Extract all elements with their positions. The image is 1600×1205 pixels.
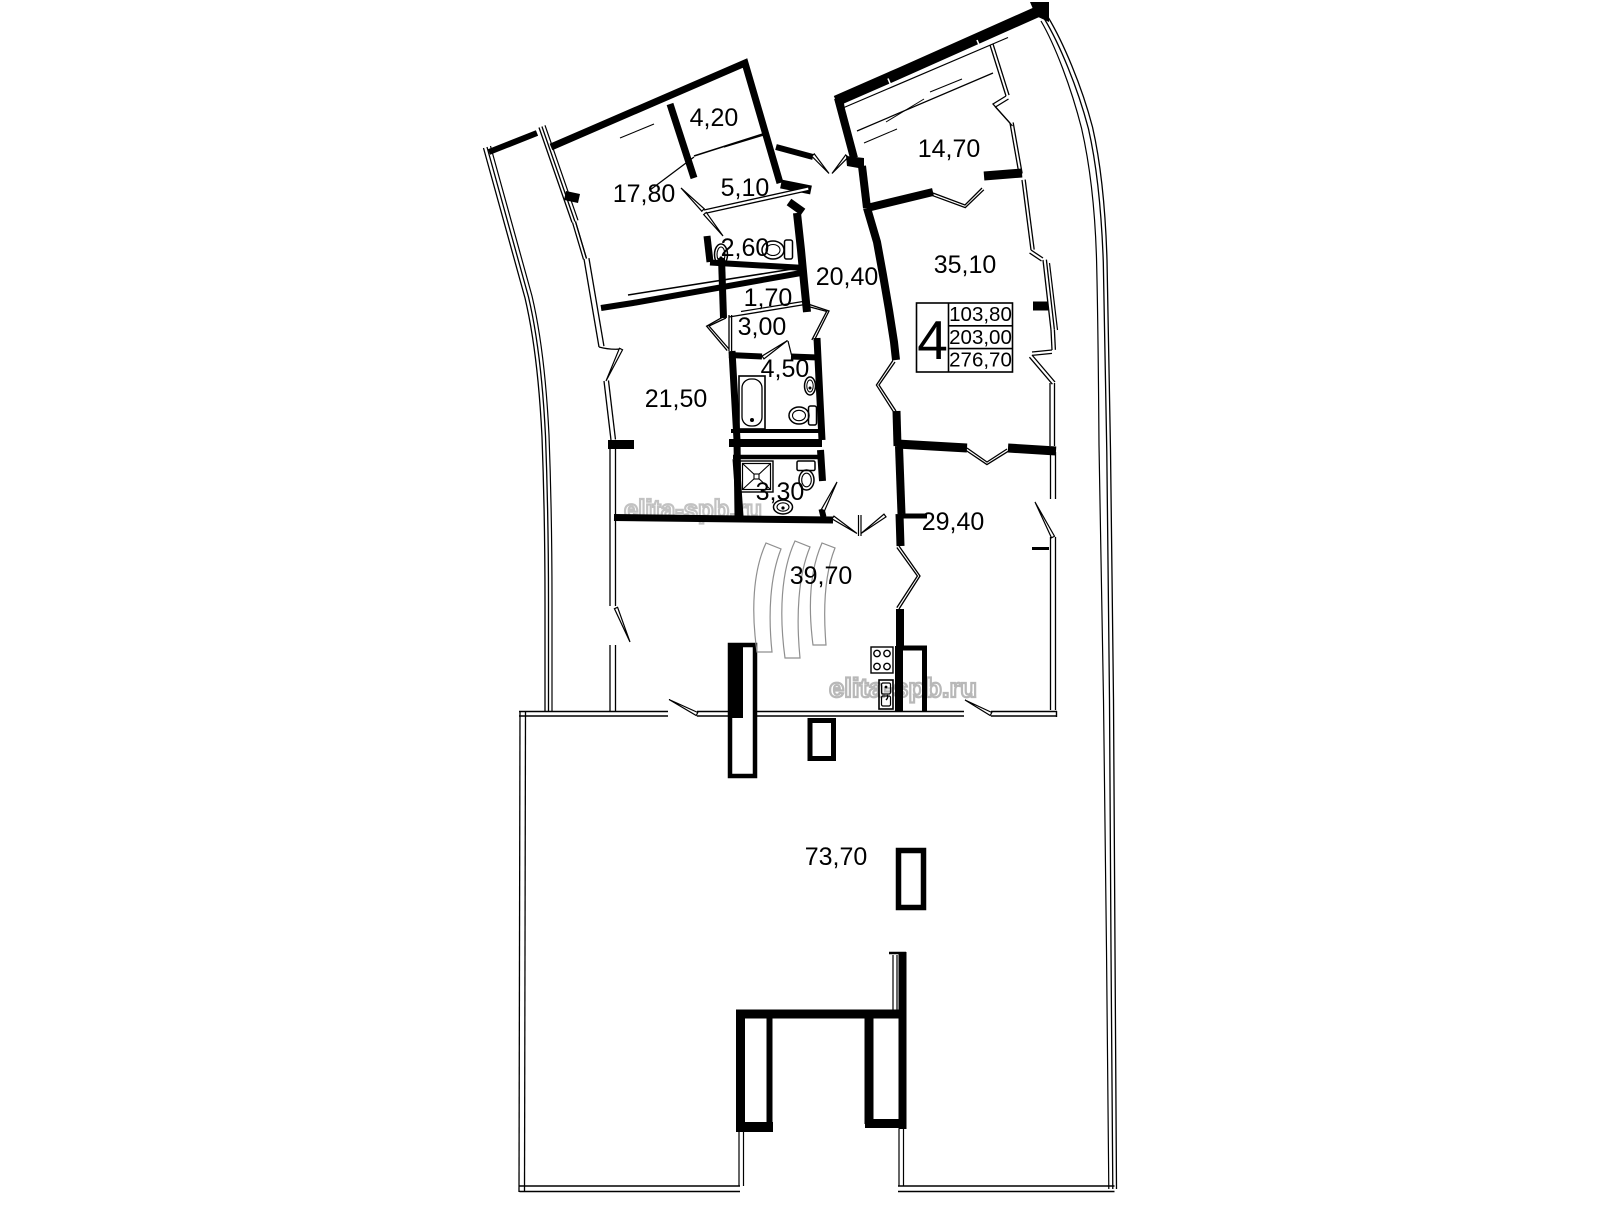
svg-text:4,20: 4,20 [690,104,739,132]
svg-text:21,50: 21,50 [645,385,708,413]
svg-text:276,70: 276,70 [949,349,1012,372]
svg-text:3,30: 3,30 [756,478,805,506]
svg-text:4,50: 4,50 [761,355,810,383]
svg-text:17,80: 17,80 [613,180,676,208]
svg-text:3,00: 3,00 [738,313,787,341]
svg-text:39,70: 39,70 [790,562,853,590]
svg-text:103,80: 103,80 [949,303,1012,326]
svg-text:5,10: 5,10 [721,174,770,202]
svg-text:14,70: 14,70 [918,135,981,163]
svg-text:2,60: 2,60 [721,234,770,262]
svg-text:203,00: 203,00 [949,326,1012,349]
svg-text:1,70: 1,70 [744,284,793,312]
svg-text:4: 4 [917,309,948,371]
svg-text:73,70: 73,70 [805,843,868,871]
svg-text:29,40: 29,40 [922,508,985,536]
svg-text:20,40: 20,40 [816,263,879,291]
svg-text:35,10: 35,10 [934,251,997,279]
